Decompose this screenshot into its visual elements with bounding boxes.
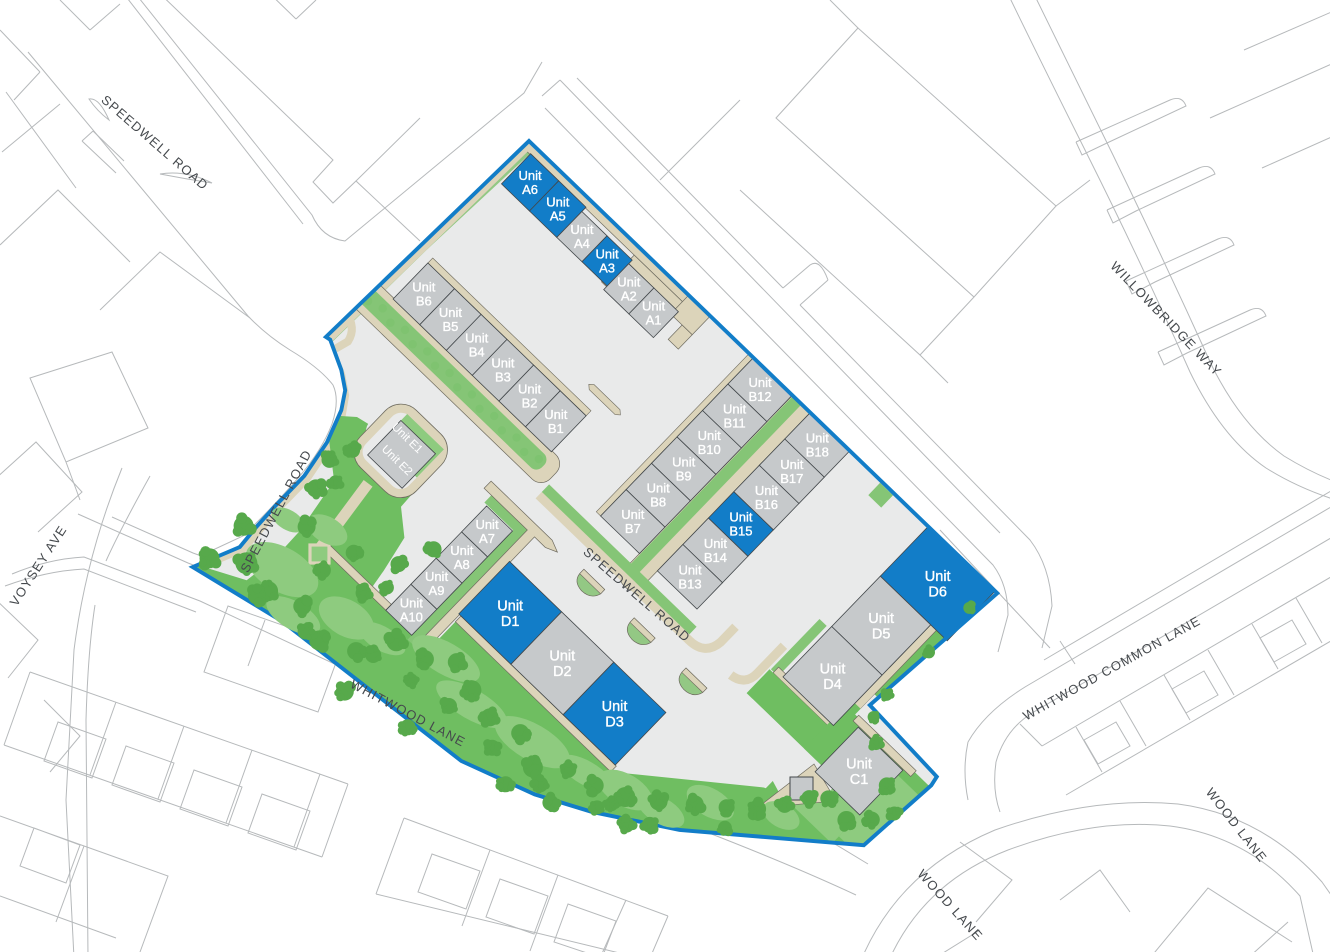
svg-text:B3: B3 <box>495 370 511 385</box>
svg-text:B12: B12 <box>749 389 772 404</box>
svg-text:Unit: Unit <box>425 569 449 584</box>
svg-text:B9: B9 <box>676 468 692 483</box>
svg-text:Unit: Unit <box>465 330 489 345</box>
svg-text:B4: B4 <box>469 344 485 359</box>
svg-text:B17: B17 <box>780 471 803 486</box>
svg-text:Unit: Unit <box>704 536 728 551</box>
svg-text:Unit: Unit <box>820 662 846 678</box>
svg-text:Unit: Unit <box>846 757 872 773</box>
svg-text:Unit: Unit <box>755 483 779 498</box>
svg-text:C1: C1 <box>850 772 869 788</box>
svg-text:B11: B11 <box>724 416 746 431</box>
svg-text:Unit: Unit <box>412 279 436 294</box>
svg-text:B18: B18 <box>806 444 829 459</box>
svg-text:A8: A8 <box>454 557 470 572</box>
svg-text:B7: B7 <box>625 521 641 536</box>
svg-text:Unit: Unit <box>596 246 620 261</box>
svg-text:B8: B8 <box>650 495 666 510</box>
svg-text:B13: B13 <box>678 576 701 591</box>
svg-text:A4: A4 <box>574 236 590 251</box>
svg-text:Unit: Unit <box>549 649 575 665</box>
svg-text:D2: D2 <box>553 664 572 680</box>
svg-text:Unit: Unit <box>497 598 523 614</box>
svg-text:Unit: Unit <box>570 222 594 237</box>
svg-text:B14: B14 <box>704 550 727 565</box>
svg-text:A3: A3 <box>599 260 615 275</box>
svg-text:Unit: Unit <box>519 168 543 183</box>
svg-text:Unit: Unit <box>602 699 628 715</box>
svg-text:D6: D6 <box>928 585 947 601</box>
svg-text:D4: D4 <box>823 677 842 693</box>
svg-text:Unit: Unit <box>672 454 696 469</box>
svg-text:Unit: Unit <box>546 195 570 210</box>
svg-text:Unit: Unit <box>749 375 773 390</box>
svg-text:Unit: Unit <box>439 305 463 320</box>
svg-text:Unit: Unit <box>642 298 666 313</box>
svg-text:Unit: Unit <box>698 428 722 443</box>
svg-text:Unit: Unit <box>678 562 702 577</box>
svg-text:A1: A1 <box>646 312 662 327</box>
svg-text:Unit: Unit <box>475 517 499 532</box>
svg-text:D5: D5 <box>872 627 891 643</box>
svg-text:Unit: Unit <box>621 507 645 522</box>
svg-text:A6: A6 <box>522 182 538 197</box>
svg-text:D1: D1 <box>501 614 520 630</box>
svg-text:A7: A7 <box>479 531 495 546</box>
svg-text:Unit: Unit <box>780 457 804 472</box>
svg-text:B2: B2 <box>522 395 538 410</box>
svg-text:Unit: Unit <box>806 430 830 445</box>
svg-text:B5: B5 <box>442 319 458 334</box>
svg-text:Unit: Unit <box>925 569 951 585</box>
svg-text:B1: B1 <box>548 421 564 436</box>
svg-text:A5: A5 <box>550 209 566 224</box>
svg-text:Unit: Unit <box>544 407 568 422</box>
svg-text:D3: D3 <box>605 715 624 731</box>
svg-text:B10: B10 <box>698 442 721 457</box>
svg-text:A10: A10 <box>400 609 423 624</box>
svg-text:B16: B16 <box>755 497 778 512</box>
svg-text:A9: A9 <box>429 583 445 598</box>
svg-text:Unit: Unit <box>450 543 474 558</box>
svg-text:Unit: Unit <box>617 274 641 289</box>
svg-text:Unit: Unit <box>400 595 424 610</box>
svg-text:B6: B6 <box>416 293 432 308</box>
svg-text:Unit: Unit <box>491 356 515 371</box>
svg-text:Unit: Unit <box>723 402 747 417</box>
svg-text:Unit: Unit <box>647 481 671 496</box>
svg-text:Unit: Unit <box>729 510 753 525</box>
svg-text:A2: A2 <box>621 288 637 303</box>
svg-text:Unit: Unit <box>868 611 894 627</box>
svg-text:Unit: Unit <box>518 381 542 396</box>
svg-text:B15: B15 <box>729 524 752 539</box>
